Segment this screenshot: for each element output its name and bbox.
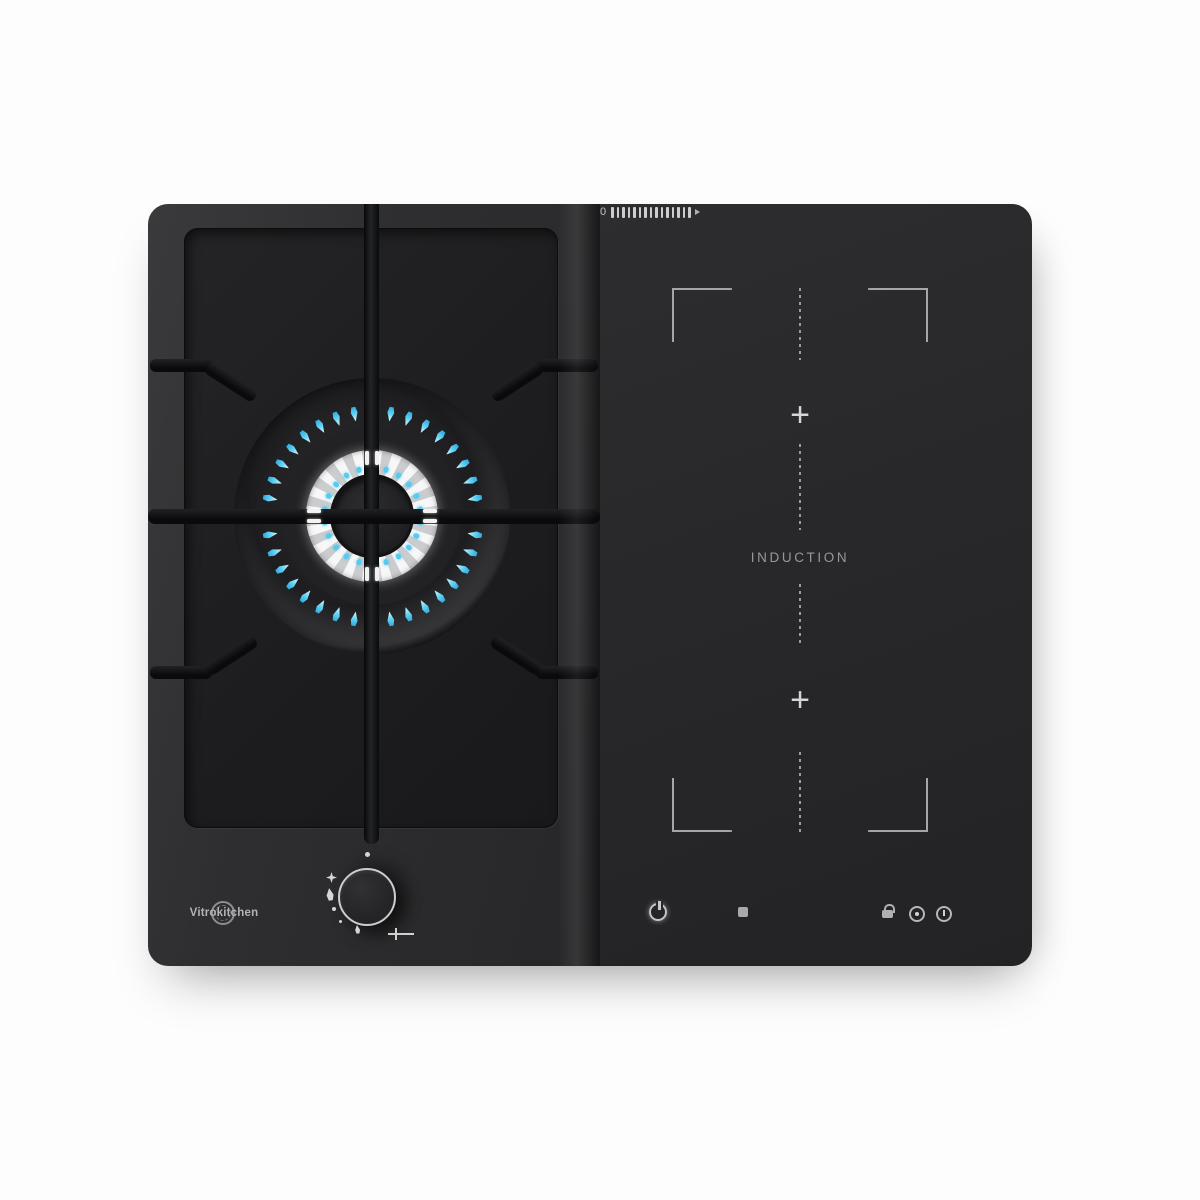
inner-gas-flame bbox=[382, 558, 388, 565]
slider-segment[interactable] bbox=[677, 207, 680, 218]
slider-segment[interactable] bbox=[650, 207, 653, 218]
inner-gas-flame bbox=[394, 472, 401, 480]
inner-gas-flame bbox=[404, 544, 412, 552]
power-slider[interactable]: 0 bbox=[600, 204, 1032, 220]
slider-segment[interactable] bbox=[617, 207, 620, 218]
inner-gas-flame bbox=[394, 553, 401, 561]
inner-gas-flame bbox=[342, 553, 349, 561]
slider-segment[interactable] bbox=[661, 207, 664, 218]
crown-notch-north bbox=[361, 450, 383, 466]
zone-divider-dashes bbox=[799, 444, 801, 530]
crown-notch-east bbox=[422, 505, 438, 527]
slider-segment[interactable] bbox=[633, 207, 636, 218]
flex-zone-bracket-top-left bbox=[672, 288, 732, 342]
timer-icon[interactable] bbox=[909, 906, 925, 922]
inner-gas-flame bbox=[325, 532, 333, 539]
knob-small-flame-icon bbox=[353, 925, 361, 935]
zone-divider-dashes bbox=[799, 752, 801, 832]
pan-support-vertical bbox=[364, 204, 379, 844]
induction-section: + + INDUCTION 0 bbox=[600, 204, 1032, 966]
induction-label: INDUCTION bbox=[600, 550, 1000, 565]
gas-panel-bevel bbox=[558, 204, 600, 966]
pan-support-horizontal bbox=[148, 509, 600, 524]
flex-zone-bracket-top-right bbox=[868, 288, 928, 342]
slider-zero-label: 0 bbox=[600, 206, 606, 218]
inner-gas-flame bbox=[342, 472, 349, 480]
knob-large-flame-icon bbox=[324, 887, 336, 901]
knob-crosshair-marker-icon bbox=[388, 928, 414, 940]
slider-segment[interactable] bbox=[622, 207, 625, 218]
zone-divider-dashes bbox=[799, 584, 801, 646]
inner-gas-flame bbox=[382, 466, 388, 473]
knob-dot-icon bbox=[332, 907, 336, 911]
product-photo: Vitrokitchen + + INDUCTION 0 bbox=[0, 0, 1200, 1200]
power-slider-track[interactable] bbox=[611, 207, 691, 218]
hob: Vitrokitchen + + INDUCTION 0 bbox=[148, 204, 1032, 966]
brand-logo: Vitrokitchen bbox=[187, 907, 261, 919]
inner-gas-flame bbox=[404, 481, 412, 489]
slider-segment[interactable] bbox=[639, 207, 642, 218]
gas-section: Vitrokitchen bbox=[148, 204, 600, 966]
inner-gas-flame bbox=[412, 532, 420, 539]
knob-ignition-spark-icon bbox=[326, 872, 337, 883]
slider-segment[interactable] bbox=[672, 207, 675, 218]
slider-segment[interactable] bbox=[688, 207, 691, 218]
slider-segment[interactable] bbox=[683, 207, 686, 218]
crown-notch-west bbox=[306, 505, 322, 527]
stop-icon[interactable] bbox=[738, 907, 748, 917]
slider-segment[interactable] bbox=[611, 207, 614, 218]
inner-gas-flame bbox=[325, 493, 333, 500]
slider-segment[interactable] bbox=[655, 207, 658, 218]
brand-name: Vitrokitchen bbox=[187, 907, 261, 919]
inner-gas-flame bbox=[412, 493, 420, 500]
slider-segment[interactable] bbox=[628, 207, 631, 218]
flex-zone-top-center-marker: + bbox=[785, 400, 815, 430]
knob-dot-icon bbox=[339, 920, 342, 923]
inner-gas-flame bbox=[332, 544, 340, 552]
slider-segment[interactable] bbox=[644, 207, 647, 218]
clock-icon[interactable] bbox=[936, 906, 952, 922]
flex-zone-bracket-bottom-left bbox=[672, 778, 732, 832]
zone-divider-dashes bbox=[799, 288, 801, 360]
crown-notch-south bbox=[361, 566, 383, 582]
lock-icon[interactable] bbox=[882, 904, 893, 918]
inner-gas-flame bbox=[355, 558, 361, 565]
flex-zone-bracket-bottom-right bbox=[868, 778, 928, 832]
slider-segment[interactable] bbox=[666, 207, 669, 218]
slider-arrow-icon bbox=[695, 209, 700, 215]
inner-gas-flame bbox=[332, 481, 340, 489]
gas-knob[interactable] bbox=[338, 868, 396, 926]
inner-gas-flame bbox=[355, 466, 361, 473]
flex-zone-bottom-center-marker: + bbox=[785, 685, 815, 715]
knob-off-dot-icon bbox=[365, 852, 370, 857]
power-icon[interactable] bbox=[649, 903, 667, 921]
